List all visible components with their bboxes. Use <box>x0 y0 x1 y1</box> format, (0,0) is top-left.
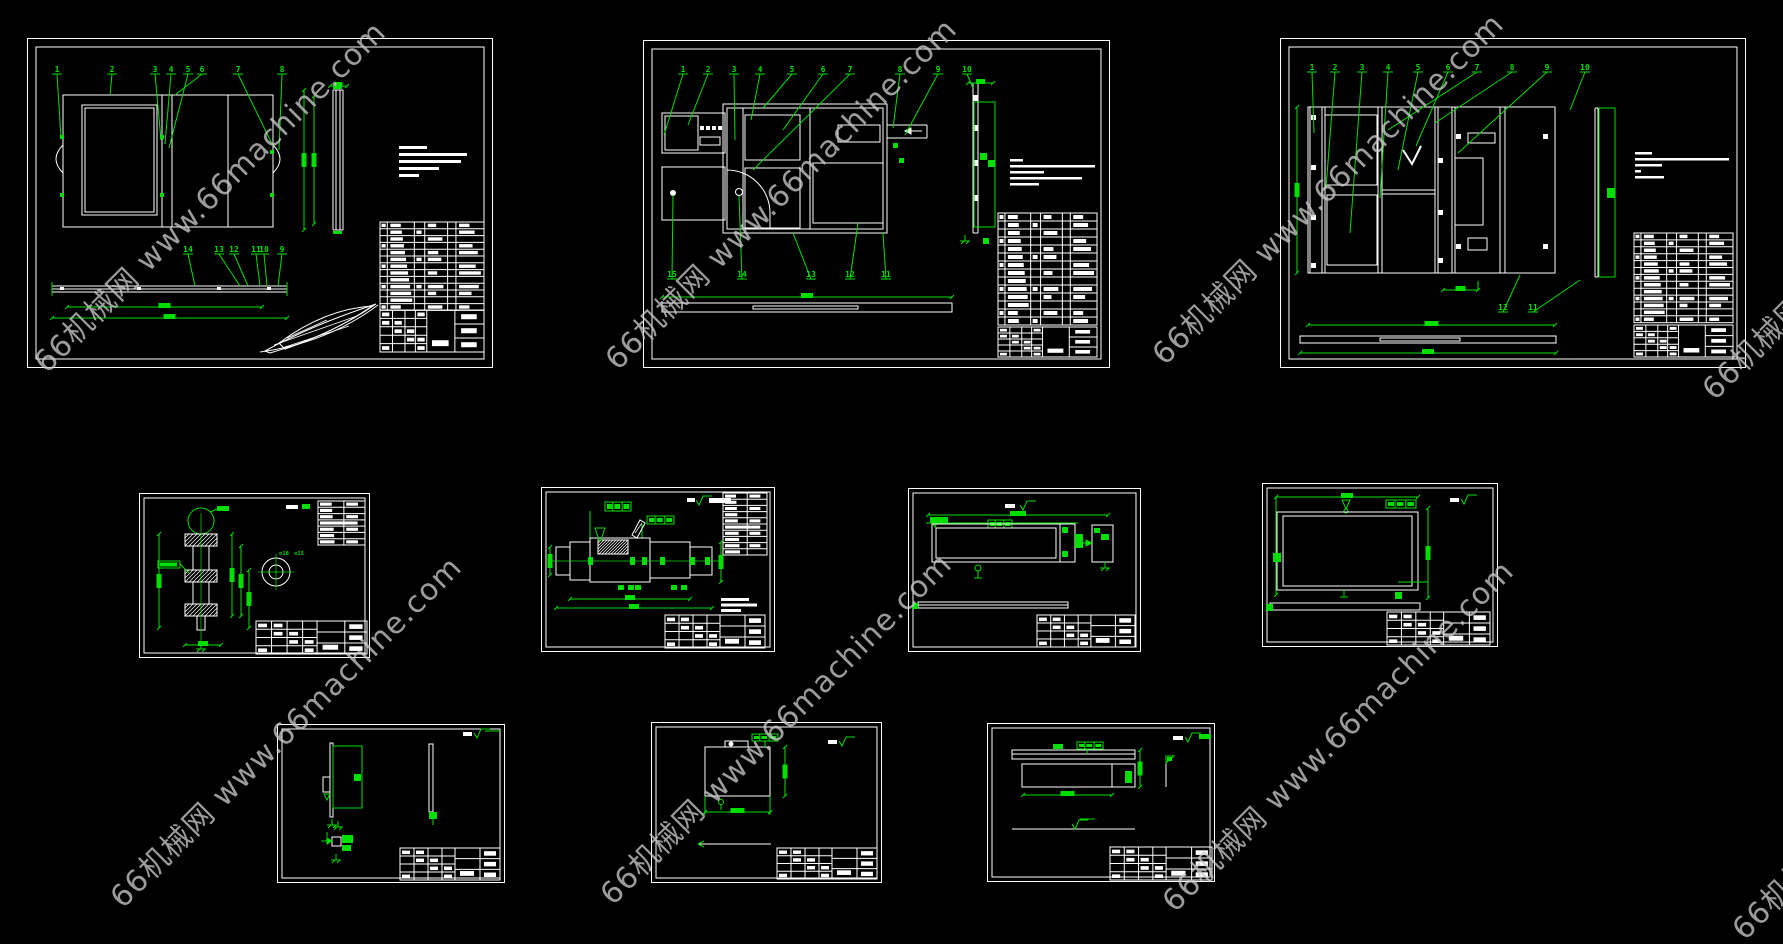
callout-number: 4 <box>758 65 763 74</box>
callout-number: 9 <box>280 245 285 254</box>
callout-number: 2 <box>706 65 711 74</box>
sheet-part-panel[interactable] <box>651 722 882 883</box>
sheet-part-wheel[interactable]: ∅18∅15 <box>139 493 370 658</box>
sheet-part-plate[interactable] <box>908 488 1141 652</box>
callout-number: 5 <box>1416 63 1421 72</box>
callout-number: 3 <box>732 65 737 74</box>
callout-number: 7 <box>848 65 853 74</box>
callout-number: 5 <box>790 65 795 74</box>
sheet-assembly-drawing-3[interactable]: 123456789101211 <box>1280 38 1746 368</box>
callout-number: 13 <box>214 245 224 254</box>
callout-number: 6 <box>1446 63 1451 72</box>
callout-number: 9 <box>936 65 941 74</box>
callout-number: 3 <box>153 65 158 74</box>
callout-number: 5 <box>186 65 191 74</box>
sheet-assembly-drawing-1[interactable]: 1234567814131211109 <box>27 38 493 368</box>
callout-number: ∅18 <box>279 551 289 557</box>
callout-number: 3 <box>1360 63 1365 72</box>
callout-number: 8 <box>1510 63 1515 72</box>
callout-number: 6 <box>821 65 826 74</box>
sheet-part-frame[interactable] <box>1262 483 1498 647</box>
callout-number: 4 <box>169 65 174 74</box>
callout-number: 4 <box>1386 63 1391 72</box>
callout-number: 2 <box>1333 63 1338 72</box>
watermark-text: 66机械网 www.66machine.com <box>1720 576 1783 944</box>
callout-number: 1 <box>1310 63 1315 72</box>
sheet-assembly-drawing-2[interactable]: 123456789101514131211 <box>643 40 1110 368</box>
callout-number: 10 <box>962 65 972 74</box>
callout-number: 10 <box>1580 63 1590 72</box>
callout-number: 9 <box>1545 63 1550 72</box>
cad-canvas: 66机械网 www.66machine.com 66机械网 www.66mach… <box>0 0 1783 944</box>
callout-number: 6 <box>200 65 205 74</box>
callout-number: 1 <box>55 65 60 74</box>
sheet-part-shaft[interactable] <box>541 487 775 652</box>
callout-number: ∅15 <box>294 551 304 557</box>
callout-number: 8 <box>898 65 903 74</box>
callout-number: 1 <box>681 65 686 74</box>
sheet-part-bracket[interactable] <box>277 724 505 883</box>
sheet-part-profile[interactable] <box>987 723 1215 882</box>
callout-number: 10 <box>259 245 269 254</box>
callout-number: 7 <box>1475 63 1480 72</box>
callout-number: 12 <box>229 245 239 254</box>
callout-number: 11 <box>1528 303 1538 312</box>
callout-number: 14 <box>183 245 193 254</box>
callout-number: 8 <box>280 65 285 74</box>
callout-number: 2 <box>110 65 115 74</box>
callout-number: 7 <box>236 65 241 74</box>
